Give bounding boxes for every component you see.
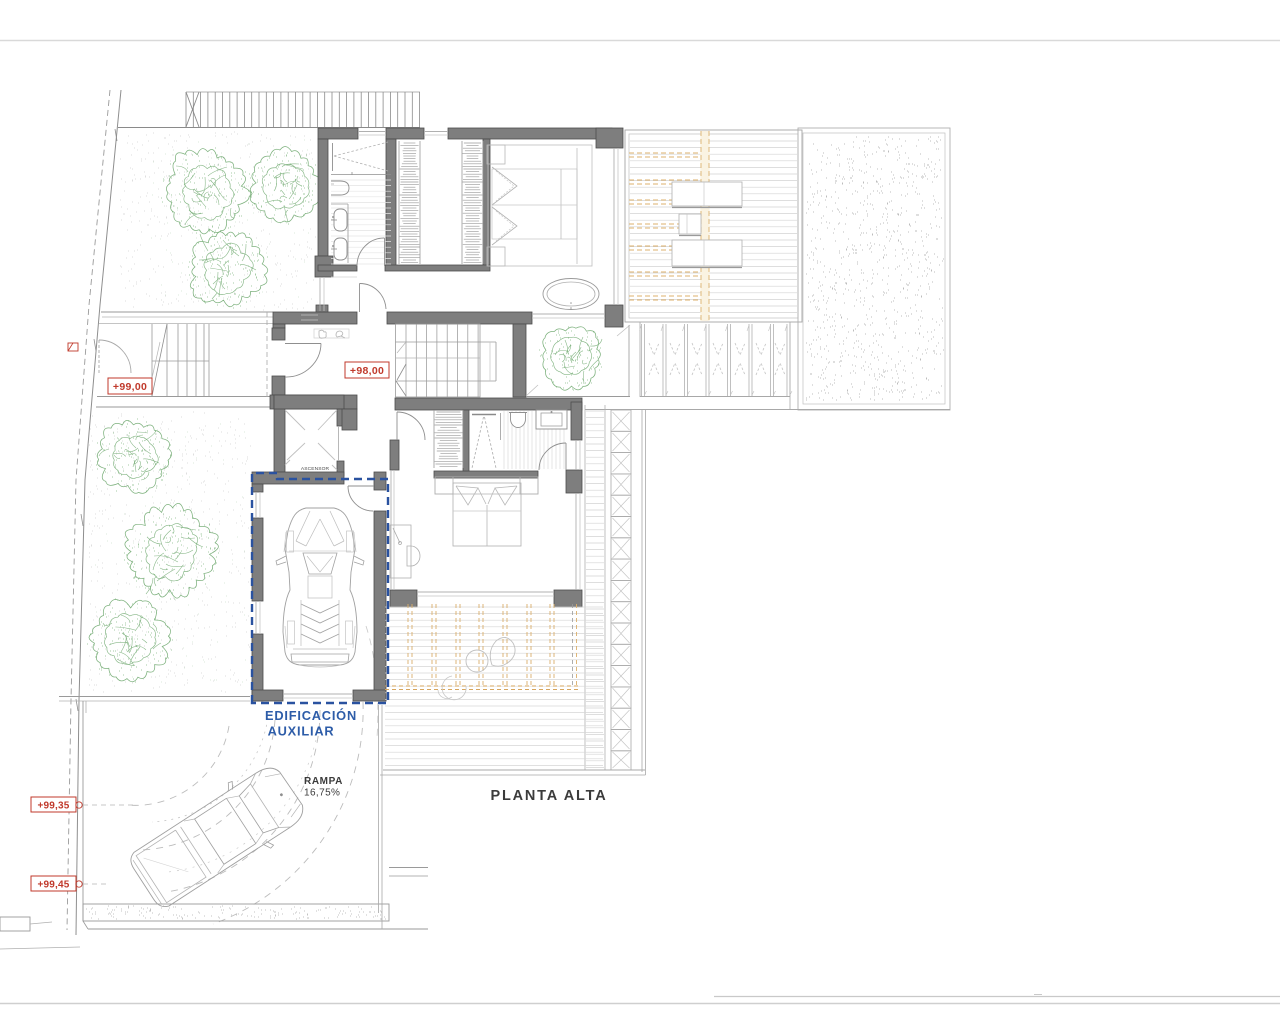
svg-text:+99,45: +99,45 xyxy=(37,880,69,891)
svg-text:AUXILIAR: AUXILIAR xyxy=(268,724,335,739)
svg-text:RAMPA: RAMPA xyxy=(304,776,343,787)
svg-text:+98,00: +98,00 xyxy=(350,365,384,377)
svg-text:PLANTA ALTA: PLANTA ALTA xyxy=(491,788,608,804)
svg-text:EDIFICACIÓN: EDIFICACIÓN xyxy=(265,708,357,723)
svg-text:+99,00: +99,00 xyxy=(113,381,147,393)
svg-text:ASCENSOR: ASCENSOR xyxy=(301,466,330,472)
svg-text:+99,35: +99,35 xyxy=(37,801,69,812)
svg-text:16,75%: 16,75% xyxy=(304,788,340,799)
